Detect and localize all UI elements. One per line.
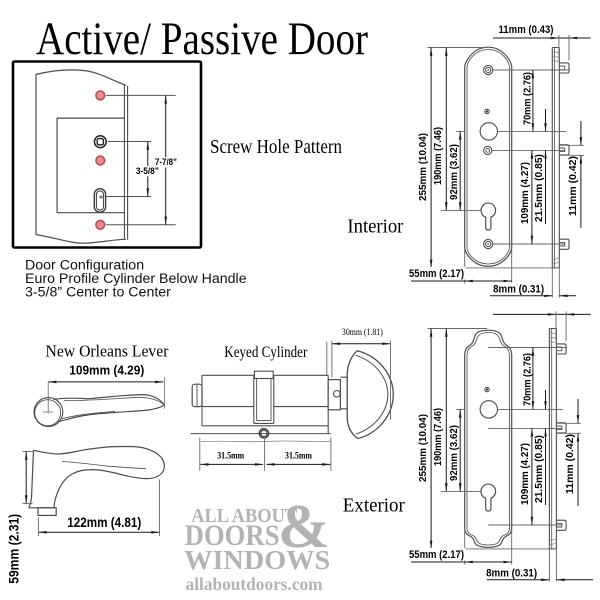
- svg-text:255mm (10.04): 255mm (10.04): [417, 133, 429, 201]
- svg-text:109mm (4.29): 109mm (4.29): [69, 364, 144, 378]
- svg-text:70mm (2.76): 70mm (2.76): [521, 353, 533, 406]
- svg-text:3-5/8” Center to Center: 3-5/8” Center to Center: [25, 285, 171, 301]
- svg-text:New Orleans Lever: New Orleans Lever: [46, 342, 169, 361]
- svg-text:11mm (0.42): 11mm (0.42): [567, 156, 579, 216]
- svg-text:55mm (2.17): 55mm (2.17): [409, 268, 464, 280]
- svg-text:59mm (2.31): 59mm (2.31): [7, 514, 22, 584]
- svg-text:Screw Hole Pattern: Screw Hole Pattern: [210, 137, 342, 158]
- svg-text:109mm (4.27): 109mm (4.27): [519, 162, 531, 224]
- svg-text:255mm (10.04): 255mm (10.04): [417, 414, 429, 482]
- svg-text:190mm (7.46): 190mm (7.46): [432, 127, 444, 185]
- svg-text:Interior: Interior: [347, 217, 403, 238]
- svg-text:70mm (2.76): 70mm (2.76): [521, 72, 533, 125]
- svg-text:31.5mm: 31.5mm: [285, 450, 312, 460]
- svg-text:Exterior: Exterior: [343, 496, 405, 517]
- svg-text:21.5mm (0.85): 21.5mm (0.85): [533, 435, 545, 503]
- svg-text:190mm (7.46): 190mm (7.46): [432, 408, 444, 466]
- svg-text:8mm (0.31): 8mm (0.31): [493, 284, 544, 296]
- svg-text:11mm (0.42): 11mm (0.42): [564, 434, 576, 494]
- svg-text:Keyed Cylinder: Keyed Cylinder: [224, 344, 308, 361]
- svg-text:8mm (0.31): 8mm (0.31): [486, 568, 537, 580]
- svg-text:122mm (4.81): 122mm (4.81): [67, 515, 141, 530]
- svg-text:55mm (2.17): 55mm (2.17): [409, 549, 464, 561]
- svg-text:allaboutdoors.com: allaboutdoors.com: [186, 574, 323, 594]
- svg-text:109mm (4.27): 109mm (4.27): [519, 443, 531, 505]
- svg-text:3-5/8”: 3-5/8”: [136, 166, 159, 176]
- svg-text:21.5mm (0.85): 21.5mm (0.85): [533, 154, 545, 222]
- svg-text:WINDOWS: WINDOWS: [184, 544, 330, 575]
- svg-text:Active/ Passive Door: Active/ Passive Door: [36, 13, 368, 65]
- svg-text:11mm (0.43): 11mm (0.43): [499, 24, 554, 36]
- svg-text:92mm (3.62): 92mm (3.62): [448, 425, 460, 481]
- svg-text:92mm (3.62): 92mm (3.62): [448, 144, 460, 200]
- svg-text:31.5mm: 31.5mm: [217, 450, 244, 460]
- svg-text:30mm (1.81): 30mm (1.81): [342, 327, 383, 338]
